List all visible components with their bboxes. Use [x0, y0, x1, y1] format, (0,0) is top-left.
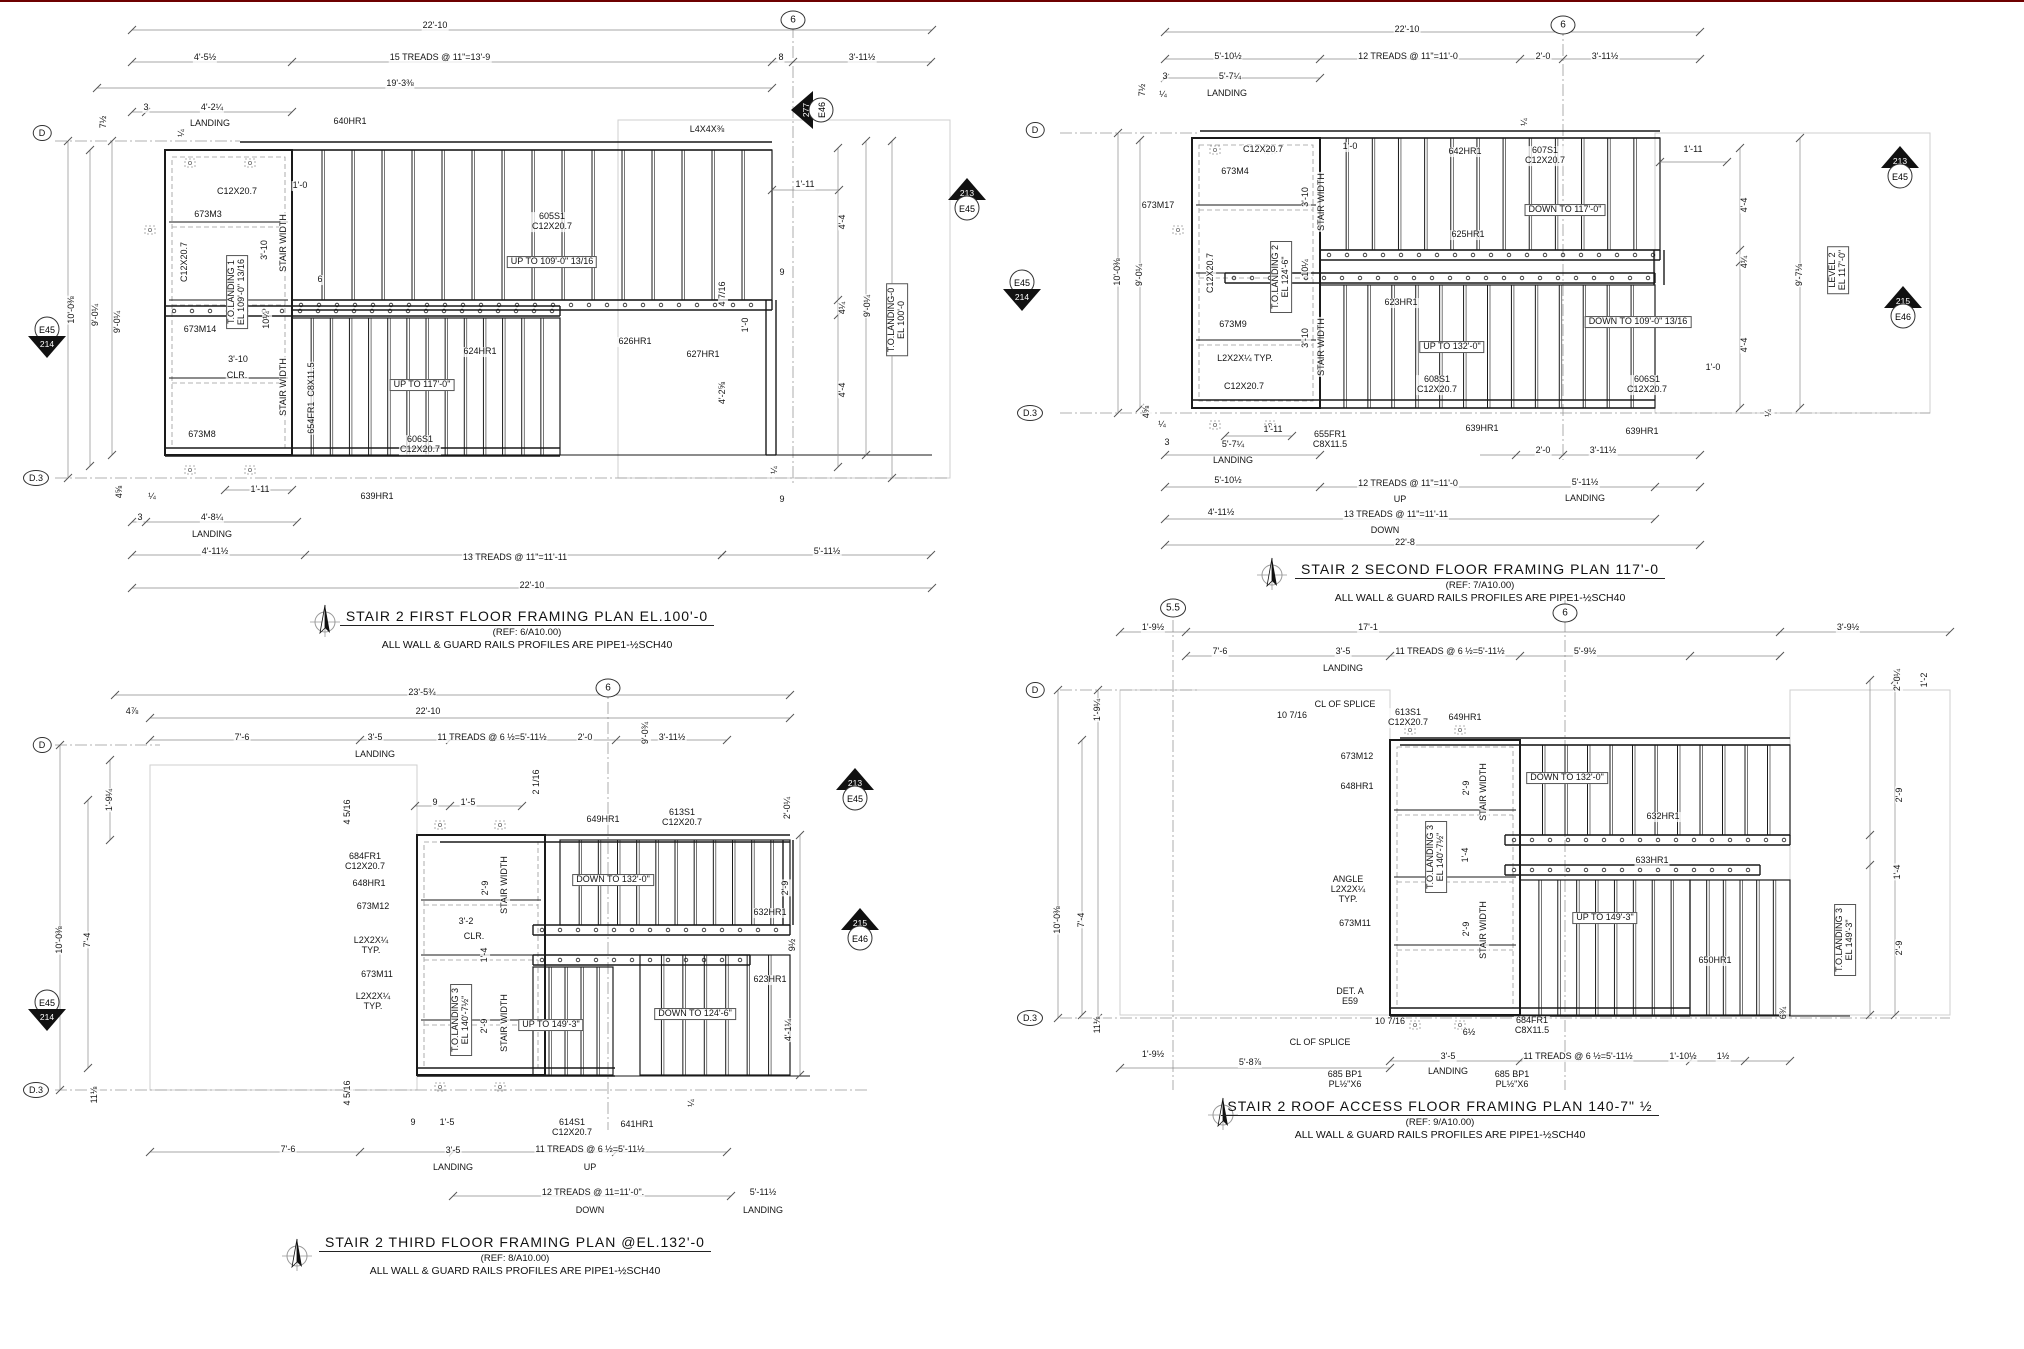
grid-letter: D — [1026, 682, 1045, 698]
annotation-label: ¼ — [177, 128, 187, 138]
annotation-label: 685 BP1 PL½"X6 — [1494, 1070, 1531, 1090]
plan2-title-block: STAIR 2 SECOND FLOOR FRAMING PLAN 117'-0… — [1170, 561, 1790, 604]
annotation-label: LANDING — [354, 750, 396, 760]
annotation-label: 4¼ — [838, 301, 848, 316]
annotation-label: 17'-1 — [1357, 623, 1379, 633]
annotation-label: T.O.LANDING-0 EL 100'-0 — [886, 284, 908, 357]
annotation-label: 11 TREADS @ 6 ½=5'-11½ — [436, 733, 547, 743]
annotation-label: 2'-9 — [1462, 780, 1472, 797]
annotation-label: 4 5/16 — [343, 1079, 353, 1106]
section-marker: E45214 — [25, 313, 69, 366]
annotation-label: ¼ — [147, 492, 157, 502]
annotation-label: 4'-4 — [1740, 197, 1750, 214]
annotation-label: 623HR1 — [752, 975, 787, 985]
annotation-label: 4'-4 — [1740, 337, 1750, 354]
annotation-label: 13 TREADS @ 11"=11'-11 — [1343, 510, 1449, 520]
annotation-label: 1'-9¼ — [1093, 698, 1103, 722]
annotation-label: 5'-8⅞ — [1238, 1058, 1262, 1068]
annotation-label: 648HR1 — [1339, 782, 1374, 792]
annotation-label: 641HR1 — [619, 1120, 654, 1130]
annotation-label: 7'-6 — [1212, 647, 1229, 657]
plan-title: STAIR 2 FIRST FLOOR FRAMING PLAN EL.100'… — [340, 608, 714, 626]
annotation-label: 3'-9½ — [1836, 623, 1860, 633]
annotation-label: STAIR WIDTH — [1317, 172, 1327, 232]
annotation-label: 19'-3⅜ — [385, 79, 414, 89]
annotation-label: 640HR1 — [332, 117, 367, 127]
annotation-label: 3 — [1161, 72, 1168, 82]
annotation-label: UP TO 149'-3" — [1572, 912, 1637, 924]
annotation-label: T.O.LANDING 3 EL 140'-7½" — [1425, 821, 1447, 893]
annotation-label: 12 TREADS @ 11"=11'-0 — [1357, 52, 1459, 62]
svg-text:E45: E45 — [39, 325, 55, 335]
annotation-label: 1'-9½ — [1141, 1050, 1165, 1060]
grid-letter: D.3 — [23, 1082, 49, 1098]
section-marker: 213E45 — [945, 176, 989, 229]
annotation-label: 4⅞ — [125, 707, 140, 717]
annotation-label: 613S1 C12X20.7 — [661, 808, 703, 828]
annotation-label: ¼ — [687, 1098, 697, 1108]
annotation-label: 3 — [142, 103, 149, 113]
annotation-label: 4'-1¼ — [784, 1018, 794, 1042]
annotation-label: ¼ — [770, 465, 780, 475]
annotation-label: 1'-11 — [1682, 145, 1703, 155]
annotation-label: 4'-4 — [838, 382, 848, 399]
annotation-label: C12X20.7 — [180, 241, 190, 283]
annotation-label: CLR. — [226, 371, 249, 381]
annotation-label: 5'-10½ — [1213, 476, 1242, 486]
annotation-label: ANGLE L2X2X¼ TYP. — [1330, 875, 1367, 905]
annotation-label: 4'-8¼ — [200, 513, 224, 523]
annotation-label: 3 — [1163, 438, 1170, 448]
svg-text:214: 214 — [40, 339, 54, 349]
annotation-label: 3'-11½ — [1591, 52, 1620, 62]
svg-text:E45: E45 — [959, 204, 975, 214]
grid-letter: D — [1026, 122, 1045, 138]
annotation-label: 649HR1 — [1447, 713, 1482, 723]
annotation-label: CL OF SPLICE — [1289, 1038, 1352, 1048]
svg-text:214: 214 — [40, 1012, 54, 1022]
svg-text:E45: E45 — [1014, 278, 1030, 288]
annotation-label: 4'-5½ — [193, 53, 217, 63]
plan-ref: (REF: 9/A10.00) — [1130, 1117, 1750, 1128]
grid-bubble: 6 — [596, 679, 621, 698]
section-marker: 277E46 — [791, 86, 835, 139]
annotation-label: 606S1 C12X20.7 — [399, 435, 441, 455]
annotation-label: 2'-0 — [577, 733, 594, 743]
annotation-label: 9 — [778, 268, 785, 278]
annotation-label: LANDING — [191, 530, 233, 540]
section-marker: 215E46 — [838, 906, 882, 959]
annotation-label: LANDING — [432, 1163, 474, 1173]
annotation-label: LANDING — [1212, 456, 1254, 466]
annotation-label: 1'-5 — [460, 798, 477, 808]
annotation-label: L2X2X¼ TYP. — [355, 992, 392, 1012]
annotation-label: CLR. — [463, 932, 486, 942]
annotation-label: 4'-2⅝ — [718, 381, 728, 405]
plan-title: STAIR 2 ROOF ACCESS FLOOR FRAMING PLAN 1… — [1221, 1098, 1658, 1116]
annotation-label: 627HR1 — [685, 350, 720, 360]
annotation-label: L2X2X¼ TYP. — [353, 936, 390, 956]
annotation-label: 642HR1 — [1447, 147, 1482, 157]
annotation-label: DOWN — [1370, 526, 1401, 536]
annotation-label: 5'-11½ — [1571, 478, 1600, 488]
annotation-label: DOWN TO 124'-6" — [654, 1008, 736, 1020]
plan-ref: (REF: 7/A10.00) — [1170, 580, 1790, 591]
annotation-label: 650HR1 — [1697, 956, 1732, 966]
annotation-label: 673M11 — [360, 970, 394, 980]
annotation-label: 3'-10 — [260, 239, 270, 261]
section-marker: 213E45 — [833, 766, 877, 819]
annotation-label: 9 — [778, 495, 785, 505]
annotation-label: 22'-10 — [422, 21, 449, 31]
annotation-label: STAIR WIDTH — [1479, 900, 1489, 960]
annotation-label: 614S1 C12X20.7 — [551, 1118, 593, 1138]
annotation-label: 9'-0¼ — [1135, 263, 1145, 287]
annotation-label: 673M4 — [1220, 167, 1250, 177]
annotation-label: 4'-11½ — [1207, 508, 1236, 518]
annotation-label: 9'-0¾ — [641, 721, 651, 745]
annotation-label: 649HR1 — [585, 815, 620, 825]
plan-note: ALL WALL & GUARD RAILS PROFILES ARE PIPE… — [205, 1265, 825, 1277]
annotation-label: 4'-11½ — [201, 547, 230, 557]
annotation-label: UP TO 132'-0" — [1419, 341, 1484, 353]
annotation-label: 12 TREADS @ 11=11'-0". — [541, 1188, 645, 1198]
annotation-label: 3'-5 — [445, 1146, 462, 1156]
annotation-label: 7'-4 — [1077, 912, 1087, 929]
annotation-label: 1'-4 — [1893, 864, 1903, 881]
annotation-label: 3 — [136, 513, 143, 523]
annotation-label: 1½ — [1716, 1052, 1731, 1062]
annotation-label: 10¼ — [1301, 258, 1311, 278]
annotation-label: 1'-9½ — [1141, 623, 1165, 633]
grid-letter: D.3 — [1017, 405, 1043, 421]
annotation-label: 8 — [777, 53, 784, 63]
annotation-label: 9'-0¼ — [91, 303, 101, 327]
annotation-label: DOWN TO 109'-0" 13/16 — [1585, 316, 1692, 328]
annotation-label: 3'-10 — [1301, 186, 1311, 208]
annotation-label: UP TO 117'-0" — [390, 379, 455, 391]
annotation-label: 1'-11 — [1262, 425, 1283, 435]
annotation-label: 5'-9½ — [1573, 647, 1597, 657]
annotation-label: 2'-9 — [1462, 921, 1472, 938]
annotation-label: 1'-11 — [249, 485, 270, 495]
annotation-label: 623HR1 — [1383, 298, 1418, 308]
annotation-label: 5'-7¼ — [1221, 440, 1245, 450]
annotation-label: 9'-0¼ — [863, 294, 873, 318]
annotation-label: 632HR1 — [752, 908, 787, 918]
annotation-label: 22'-10 — [1394, 25, 1421, 35]
annotation-label: STAIR WIDTH — [1317, 317, 1327, 377]
annotation-label: 1'-10½ — [1668, 1052, 1697, 1062]
annotation-label: 673M12 — [356, 902, 391, 912]
annotation-label: 639HR1 — [1624, 427, 1659, 437]
annotation-label: UP — [1393, 495, 1408, 505]
annotation-label: 23'-5¾ — [407, 688, 436, 698]
annotation-label: 2'-9 — [480, 1018, 490, 1035]
annotation-label: 5'-7¼ — [1218, 72, 1242, 82]
annotation-label: 6¾ — [1779, 1006, 1789, 1021]
annotation-label: UP TO 109'-0" 13/16 — [507, 256, 597, 268]
annotation-label: 1'-0 — [292, 181, 309, 191]
annotation-label: ¼ — [1157, 420, 1167, 430]
annotation-label: 654FR1 C8X11.5 — [307, 361, 317, 434]
annotation-label: 2'-0¼ — [783, 796, 793, 820]
annotation-label: C12X20.7 — [1223, 382, 1265, 392]
annotation-label: STAIR WIDTH — [1479, 762, 1489, 822]
annotation-label: 3'-10 — [1301, 327, 1311, 349]
annotation-label: C12X20.7 — [1242, 145, 1284, 155]
annotation-label: 10'-0⅜ — [55, 925, 65, 954]
svg-text:E45: E45 — [847, 794, 863, 804]
annotation-label: 633HR1 — [1634, 856, 1669, 866]
plan-ref: (REF: 6/A10.00) — [217, 627, 837, 638]
plan3-title-block: STAIR 2 THIRD FLOOR FRAMING PLAN @EL.132… — [205, 1234, 825, 1277]
annotation-label: 1'-9¼ — [105, 788, 115, 812]
annotation-label: 9'-0¼ — [113, 310, 123, 334]
annotation-label: 22'-10 — [415, 707, 442, 717]
annotation-label: LANDING — [1322, 664, 1364, 674]
annotation-label: DET. A E59 — [1335, 987, 1365, 1007]
annotation-label: 3'-2 — [458, 917, 475, 927]
annotation-label: LANDING — [189, 119, 231, 129]
grid-letter: D — [33, 737, 52, 753]
plan-note: ALL WALL & GUARD RAILS PROFILES ARE PIPE… — [217, 639, 837, 651]
annotation-label: 7½ — [99, 115, 109, 130]
annotation-label: 7'-4 — [83, 932, 93, 949]
annotation-label: 3'-10 — [227, 355, 249, 365]
annotation-label: 10'-0⅜ — [1053, 905, 1063, 934]
annotation-label: 7'-6 — [234, 733, 251, 743]
annotation-label: T.O.LANDING 3 EL 149'-3" — [1834, 904, 1856, 976]
svg-text:E45: E45 — [39, 998, 55, 1008]
annotation-label: 11⅛ — [90, 1086, 100, 1105]
annotation-label: UP — [583, 1163, 598, 1173]
annotation-label: 625HR1 — [1450, 230, 1485, 240]
annotation-label: 4⅝ — [115, 485, 125, 500]
annotation-label: 613S1 C12X20.7 — [1387, 708, 1429, 728]
annotation-label: T.O.LANDING 3 EL 140'-7½" — [450, 984, 472, 1056]
grid-letter: D.3 — [1017, 1010, 1043, 1026]
annotation-label: 1'-11 — [794, 180, 815, 190]
annotation-label: DOWN TO 132'-0" — [1526, 772, 1608, 784]
plan1-title-block: STAIR 2 FIRST FLOOR FRAMING PLAN EL.100'… — [217, 608, 837, 651]
annotation-label: 673M8 — [187, 430, 217, 440]
annotation-label: 3'-5 — [367, 733, 384, 743]
annotation-label: 1'-4 — [480, 947, 490, 964]
annotation-label: 2'-0 — [1535, 446, 1552, 456]
annotation-label: 673M12 — [1340, 752, 1375, 762]
annotation-label: 673M14 — [183, 325, 218, 335]
annotation-label: C12X20.7 — [1206, 252, 1216, 294]
annotation-label: 673M3 — [193, 210, 223, 220]
annotation-label: 684FR1 C8X11.5 — [1514, 1016, 1550, 1036]
annotation-label: 1'-0 — [741, 317, 751, 334]
annotation-label: 5'-11½ — [749, 1188, 778, 1198]
annotation-label: DOWN TO 117'-0" — [1525, 204, 1606, 216]
annotation-label: 22'-8 — [1394, 538, 1416, 548]
annotation-label: 648HR1 — [351, 879, 386, 889]
annotation-label: 15 TREADS @ 11"=13'-9 — [389, 53, 492, 63]
annotation-label: ¼ — [1520, 117, 1530, 127]
annotation-label: LANDING — [1427, 1067, 1469, 1077]
annotation-label: 11 TREADS @ 6 ½=5'-11½ — [1394, 647, 1505, 657]
annotation-label: LANDING — [1564, 494, 1606, 504]
plan-note: ALL WALL & GUARD RAILS PROFILES ARE PIPE… — [1170, 592, 1790, 604]
annotation-label: 10¼ — [262, 310, 272, 330]
annotation-label: 10 7/16 — [1374, 1017, 1406, 1027]
annotation-label: 2'-9 — [1895, 787, 1905, 804]
annotation-label: 655FR1 C8X11.5 — [1312, 430, 1348, 450]
annotation-label: 673M11 — [1338, 919, 1372, 929]
annotation-label: LANDING — [742, 1206, 784, 1216]
annotation-label: 9 — [409, 1118, 416, 1128]
annotation-label: 1'-0 — [1342, 142, 1359, 152]
annotation-label: C12X20.7 — [216, 187, 258, 197]
annotation-label: LANDING — [1206, 89, 1248, 99]
annotation-label: 606S1 C12X20.7 — [1626, 375, 1668, 395]
drawing-sheet: 22'-104'-5½15 TREADS @ 11"=13'-983'-11½1… — [0, 0, 2024, 1349]
annotation-label: 2'-9 — [1895, 940, 1905, 957]
annotation-label: CL OF SPLICE — [1314, 700, 1377, 710]
annotation-label: L2X2X¼ TYP. — [1216, 354, 1274, 364]
svg-text:E46: E46 — [817, 102, 827, 118]
annotation-label: 1'-4 — [1461, 847, 1471, 864]
annotation-label: 2'-9 — [781, 880, 791, 897]
plan4-title-block: STAIR 2 ROOF ACCESS FLOOR FRAMING PLAN 1… — [1130, 1098, 1750, 1141]
watermark-text: Tekla structures — [0, 1297, 2, 1343]
annotation-label: 4'-2¼ — [200, 103, 224, 113]
annotation-label: T.O.LANDING 1 EL 109'-0" 13/16 — [226, 255, 248, 329]
annotation-label: ¼ — [1764, 408, 1774, 418]
annotation-label: 685 BP1 PL½"X6 — [1327, 1070, 1364, 1090]
annotation-label: 9'-7⅛ — [1795, 263, 1805, 287]
annotation-label: 4 5/16 — [343, 798, 353, 825]
annotation-label: 626HR1 — [617, 337, 652, 347]
svg-text:E46: E46 — [852, 934, 868, 944]
svg-text:E45: E45 — [1892, 172, 1908, 182]
annotation-label: STAIR WIDTH — [500, 993, 510, 1053]
annotation-label: 3'-11½ — [848, 53, 877, 63]
annotation-label: 673M9 — [1218, 320, 1248, 330]
annotation-label: 639HR1 — [1464, 424, 1499, 434]
annotation-label: ¼ — [1158, 90, 1168, 100]
plan-note: ALL WALL & GUARD RAILS PROFILES ARE PIPE… — [1130, 1129, 1750, 1141]
annotation-label: 673M17 — [1141, 201, 1176, 211]
annotation-label: 6 — [316, 275, 323, 285]
annotation-label: 10'-0⅜ — [1113, 257, 1123, 286]
svg-text:E46: E46 — [1895, 312, 1911, 322]
grid-bubble: 6 — [1551, 16, 1576, 35]
svg-text:214: 214 — [1015, 292, 1029, 302]
section-marker: E45214 — [25, 986, 69, 1039]
annotation-label: 5'-10½ — [1213, 52, 1242, 62]
section-marker: 215E46 — [1881, 284, 1925, 337]
annotation-label: 9 — [431, 798, 438, 808]
plan-ref: (REF: 8/A10.00) — [205, 1253, 825, 1264]
grid-bubble: 6 — [781, 11, 806, 30]
annotation-label: 4⅝ — [1142, 405, 1152, 420]
annotation-label: 11 TREADS @ 6 ½=5'-11½ — [534, 1145, 645, 1155]
annotation-label: 2'-0¼ — [1893, 668, 1903, 692]
grid-bubble: 6 — [1553, 604, 1578, 623]
annotation-label: 22'-10 — [519, 581, 546, 591]
annotation-label: 605S1 C12X20.7 — [531, 212, 573, 232]
annotation-label: 10 7/16 — [1276, 711, 1308, 721]
annotation-label: 12 TREADS @ 11"=11'-0 — [1357, 479, 1459, 489]
annotation-label: 3'-5 — [1440, 1052, 1457, 1062]
annotation-label: 7½ — [1138, 83, 1148, 98]
annotation-label: 1'-2 — [1920, 672, 1930, 689]
annotation-label: 2'-0 — [1535, 52, 1552, 62]
section-marker: 213E45 — [1878, 144, 1922, 197]
annotation-label: STAIR WIDTH — [500, 855, 510, 915]
annotation-label: 5'-11½ — [813, 547, 842, 557]
annotation-label: 607S1 C12X20.7 — [1524, 146, 1566, 166]
annotation-label: DOWN — [575, 1206, 606, 1216]
annotation-label: STAIR WIDTH — [279, 213, 289, 273]
annotation-label: 2 1/16 — [532, 768, 542, 795]
annotation-label: LEVEL 2 EL 117'-0" — [1827, 246, 1849, 294]
annotation-label: STAIR WIDTH — [279, 357, 289, 417]
annotation-label: 13 TREADS @ 11"=11'-11 — [462, 553, 568, 563]
grid-letter: D — [33, 125, 52, 141]
annotation-label: 9½ — [788, 938, 798, 953]
annotation-label: 3'-5 — [1335, 647, 1352, 657]
annotation-label: 684FR1 C12X20.7 — [344, 852, 386, 872]
annotation-label: 1'-5 — [439, 1118, 456, 1128]
grid-letter: D.3 — [23, 470, 49, 486]
annotation-label: 11 TREADS @ 6 ½=5'-11½ — [1522, 1052, 1633, 1062]
annotation-label: 7'-6 — [280, 1145, 297, 1155]
annotation-label: L4X4X⅜ — [689, 125, 726, 135]
annotation-label: DOWN TO 132'-0" — [572, 874, 654, 886]
annotation-label: 4 7/16 — [718, 280, 728, 307]
annotation-label: 4¼ — [1740, 255, 1750, 270]
annotation-label: 6½ — [1462, 1028, 1477, 1038]
plan-title: STAIR 2 SECOND FLOOR FRAMING PLAN 117'-0 — [1295, 561, 1665, 579]
annotation-label: 3'-11½ — [658, 733, 687, 743]
annotation-label: 3'-11½ — [1589, 446, 1618, 456]
annotation-label: 632HR1 — [1645, 812, 1680, 822]
annotation-label: 1'-0 — [1705, 363, 1722, 373]
plan-title: STAIR 2 THIRD FLOOR FRAMING PLAN @EL.132… — [319, 1234, 711, 1252]
annotation-label: 639HR1 — [359, 492, 394, 502]
annotation-label: UP TO 149'-3" — [518, 1019, 583, 1031]
annotation-label: 608S1 C12X20.7 — [1416, 375, 1458, 395]
drawing-canvas — [0, 0, 2024, 1349]
annotation-label: 11⅛ — [1093, 1016, 1103, 1035]
annotation-label: 624HR1 — [462, 347, 497, 357]
annotation-label: 4'-4 — [838, 214, 848, 231]
section-marker: E45214 — [1000, 266, 1044, 319]
annotation-label: 2'-9 — [481, 880, 491, 897]
annotation-label: T.O.LANDING 2 EL 124'-6" — [1270, 241, 1292, 313]
